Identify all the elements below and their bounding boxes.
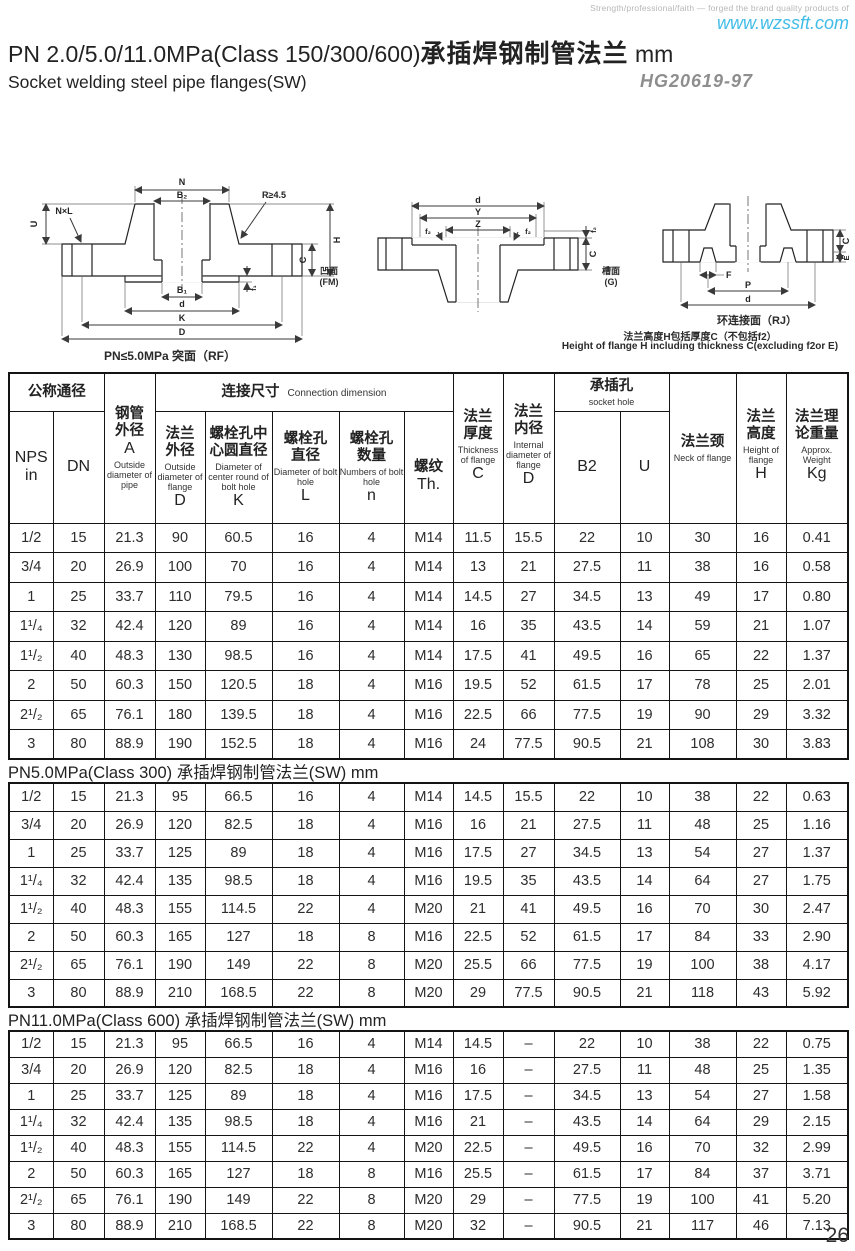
- dim-label-d: d: [745, 294, 751, 304]
- table-cell: 4: [339, 783, 404, 811]
- table-cell: 16: [453, 1057, 503, 1083]
- table-cell: 43.5: [554, 612, 620, 642]
- table-cell: 27: [736, 1083, 786, 1109]
- table-cell: 18: [272, 1057, 339, 1083]
- dim-label-U: U: [29, 221, 39, 228]
- id-en: Internal diameter of flange: [504, 440, 554, 470]
- website-url: www.wzssft.com: [717, 13, 849, 34]
- w-cn: 法兰理 论重量: [795, 409, 839, 443]
- table-cell: 4: [339, 867, 404, 895]
- fm-face-label: 凹面 (FM): [312, 266, 346, 288]
- table-cell: 22.5: [453, 700, 503, 730]
- table-cell: 120.5: [205, 671, 272, 701]
- header-thread: 螺纹 Th.: [404, 411, 453, 523]
- table-row: 2¹/₂6576.1190149228M2029–77.519100415.20: [9, 1187, 848, 1213]
- table-cell: 190: [155, 730, 205, 760]
- table-cell: 30: [669, 523, 736, 553]
- table-cell: M16: [404, 867, 453, 895]
- table-cell: 110: [155, 582, 205, 612]
- table-cell: 33.7: [104, 582, 155, 612]
- table-cell: 135: [155, 867, 205, 895]
- dim-label-C: C: [841, 237, 851, 244]
- table-row: 2¹/₂6576.1180139.5184M1622.56677.5199029…: [9, 700, 848, 730]
- flange-spec-table-pn110: 1/21521.39566.5164M1414.5–221038220.753/…: [8, 1030, 849, 1240]
- header-b2: B2: [554, 411, 620, 523]
- table-cell: 88.9: [104, 979, 155, 1007]
- table-cell: 4: [339, 523, 404, 553]
- table-cell: 20: [53, 1057, 104, 1083]
- rj-diagram-caption: 环连接面（RJ）: [672, 312, 842, 328]
- header-u: U: [620, 411, 669, 523]
- dim-label-Z: Z: [475, 219, 481, 229]
- flange-rf-diagram: N B₂ N×L R≥4.5 U H C f₁ B₁ d: [14, 152, 346, 344]
- table-cell: 22.5: [453, 1135, 503, 1161]
- table-cell: 1¹/₄: [9, 867, 53, 895]
- table-cell: 21.3: [104, 523, 155, 553]
- dim-label-H: H: [332, 237, 342, 244]
- table-cell: 76.1: [104, 951, 155, 979]
- table-cell: 21: [453, 895, 503, 923]
- table-cell: 95: [155, 783, 205, 811]
- table-cell: 38: [669, 553, 736, 583]
- table-cell: 0.63: [786, 783, 848, 811]
- table-cell: 95: [155, 1031, 205, 1057]
- table-cell: 4: [339, 1109, 404, 1135]
- table-cell: 27: [503, 582, 554, 612]
- table-cell: 15: [53, 783, 104, 811]
- table-cell: 22: [736, 783, 786, 811]
- table-cell: 48: [669, 1057, 736, 1083]
- header-socket-hole: 承插孔 socket hole: [554, 373, 669, 411]
- table-cell: 18: [272, 923, 339, 951]
- dim-label-N: N: [179, 177, 186, 187]
- table-cell: 80: [53, 1213, 104, 1239]
- table-row: 38088.9210168.5228M2032–90.521117467.13: [9, 1213, 848, 1239]
- table-cell: M16: [404, 923, 453, 951]
- table-cell: 2.01: [786, 671, 848, 701]
- n-letter: n: [367, 487, 376, 505]
- socket-en: socket hole: [555, 397, 669, 407]
- table-cell: 8: [339, 951, 404, 979]
- table-cell: 61.5: [554, 923, 620, 951]
- header-nominal-diameter: 公称通径: [9, 373, 104, 411]
- dim-label-D: D: [179, 327, 186, 337]
- h-letter: H: [755, 465, 767, 483]
- table-cell: M16: [404, 1109, 453, 1135]
- table-cell: 22: [272, 1187, 339, 1213]
- dim-label-f1: f₁: [249, 285, 258, 291]
- header-nominal-cn: 公称通径: [28, 384, 86, 400]
- table-cell: 60.3: [104, 1161, 155, 1187]
- table-cell: 1¹/₄: [9, 1109, 53, 1135]
- table-cell: 4: [339, 730, 404, 760]
- table-cell: 1: [9, 1083, 53, 1109]
- table-cell: 41: [736, 1187, 786, 1213]
- flange-cross-section: [663, 196, 833, 272]
- table-cell: 70: [669, 1135, 736, 1161]
- table-cell: 17: [736, 582, 786, 612]
- table-cell: 155: [155, 1135, 205, 1161]
- dim-label-C: C: [298, 256, 308, 263]
- w-letter: Kg: [807, 465, 827, 483]
- flange-cross-section: [62, 194, 302, 290]
- table-cell: 4: [339, 582, 404, 612]
- table-cell: 19.5: [453, 867, 503, 895]
- table-cell: 48.3: [104, 641, 155, 671]
- conn-cn: 连接尺寸: [222, 384, 280, 400]
- dim-label-R: R≥4.5: [262, 190, 286, 200]
- table-cell: 70: [205, 553, 272, 583]
- table-cell: 18: [272, 1083, 339, 1109]
- table-cell: 130: [155, 641, 205, 671]
- table-cell: 190: [155, 1187, 205, 1213]
- table-cell: 37: [736, 1161, 786, 1187]
- k-en: Diameter of center round of bolt hole: [206, 462, 272, 492]
- table-cell: 120: [155, 1057, 205, 1083]
- table-cell: 100: [669, 1187, 736, 1213]
- table-row: 3/42026.910070164M14132127.51138160.58: [9, 553, 848, 583]
- page-title-en: PN 2.0/5.0/11.0MPa(Class 150/300/600): [8, 41, 421, 67]
- page-title: PN 2.0/5.0/11.0MPa(Class 150/300/600)承插焊…: [8, 34, 673, 70]
- dim-label-E: E: [842, 255, 851, 260]
- table-cell: 4: [339, 811, 404, 839]
- table-cell: 11.5: [453, 523, 503, 553]
- dim-label-P: P: [745, 280, 751, 290]
- table-cell: 210: [155, 1213, 205, 1239]
- table-cell: 25.5: [453, 951, 503, 979]
- table-row: 1¹/₂4048.313098.5164M1417.54149.51665221…: [9, 641, 848, 671]
- table-body-pn110: 1/21521.39566.5164M1414.5–221038220.753/…: [9, 1031, 848, 1239]
- table-cell: M20: [404, 1213, 453, 1239]
- table-cell: 16: [272, 1031, 339, 1057]
- table-cell: 52: [503, 923, 554, 951]
- table-cell: 42.4: [104, 1109, 155, 1135]
- table-cell: 41: [503, 641, 554, 671]
- table-cell: 16: [453, 612, 503, 642]
- th-cn: 螺纹: [414, 459, 443, 476]
- table-cell: 2¹/₂: [9, 700, 53, 730]
- table-cell: 4: [339, 1083, 404, 1109]
- table-cell: M20: [404, 1135, 453, 1161]
- table-cell: 84: [669, 923, 736, 951]
- table-cell: 16: [620, 895, 669, 923]
- table-cell: 35: [503, 612, 554, 642]
- table-cell: 22: [736, 1031, 786, 1057]
- table-cell: 2.15: [786, 1109, 848, 1135]
- header-dn: DN: [53, 411, 104, 523]
- table-cell: M14: [404, 582, 453, 612]
- table-cell: 22: [554, 1031, 620, 1057]
- table-cell: 1.58: [786, 1083, 848, 1109]
- table-cell: 1.37: [786, 839, 848, 867]
- table-row: 3/42026.912082.5184M16162127.51148251.16: [9, 811, 848, 839]
- table-cell: 26.9: [104, 553, 155, 583]
- nps-line2: in: [25, 467, 37, 485]
- dim-label-C: C: [588, 250, 598, 257]
- table-cell: 38: [736, 951, 786, 979]
- table-cell: 34.5: [554, 582, 620, 612]
- table-cell: 80: [53, 730, 104, 760]
- table-cell: 14: [620, 1109, 669, 1135]
- table-cell: 1: [9, 582, 53, 612]
- table-cell: 16: [620, 1135, 669, 1161]
- table-cell: M14: [404, 783, 453, 811]
- table-cell: 14.5: [453, 1031, 503, 1057]
- table-row: 1¹/₄3242.412089164M14163543.51459211.07: [9, 612, 848, 642]
- header-flange-thickness: 法兰 厚度 Thickness of flange C: [453, 373, 503, 523]
- table-cell: 98.5: [205, 867, 272, 895]
- header-approx-weight: 法兰理 论重量 Approx. Weight Kg: [786, 373, 848, 523]
- table-cell: 27.5: [554, 1057, 620, 1083]
- table-cell: 90.5: [554, 979, 620, 1007]
- table-row: 25060.3165127188M1622.55261.51784332.90: [9, 923, 848, 951]
- table-cell: M16: [404, 811, 453, 839]
- dim-label-f2-mid: f₂: [525, 227, 531, 236]
- table-cell: 21: [503, 811, 554, 839]
- table-cell: 22: [272, 951, 339, 979]
- table-cell: 139.5: [205, 700, 272, 730]
- table-cell: 49: [669, 582, 736, 612]
- table-cell: 8: [339, 923, 404, 951]
- table-cell: 149: [205, 1187, 272, 1213]
- table-cell: 26.9: [104, 811, 155, 839]
- table-cell: 150: [155, 671, 205, 701]
- table-cell: 29: [453, 979, 503, 1007]
- table-cell: 2.47: [786, 895, 848, 923]
- page-subtitle: Socket welding steel pipe flanges(SW): [8, 72, 307, 93]
- table-cell: 27: [736, 839, 786, 867]
- table-cell: 3: [9, 730, 53, 760]
- table-cell: 29: [736, 1109, 786, 1135]
- table-cell: 22: [272, 1135, 339, 1161]
- table-cell: 65: [53, 1187, 104, 1213]
- page-title-unit: mm: [629, 41, 674, 67]
- table-cell: 1/2: [9, 1031, 53, 1057]
- table-cell: M14: [404, 641, 453, 671]
- l-letter: L: [301, 487, 310, 505]
- table-cell: 4: [339, 895, 404, 923]
- table-cell: 17: [620, 671, 669, 701]
- table-cell: 38: [669, 1031, 736, 1057]
- table-cell: 88.9: [104, 1213, 155, 1239]
- table-cell: 1¹/₂: [9, 895, 53, 923]
- rf-diagram-caption: PN≤5.0MPa 突面（RF）: [60, 347, 280, 364]
- table-row: 12533.711079.5164M1414.52734.51349170.80: [9, 582, 848, 612]
- table-cell: 40: [53, 895, 104, 923]
- table-cell: 82.5: [205, 811, 272, 839]
- dim-label-d: d: [179, 299, 185, 309]
- table-cell: M16: [404, 839, 453, 867]
- table-cell: 3.32: [786, 700, 848, 730]
- table-cell: –: [503, 1031, 554, 1057]
- table-cell: 66: [503, 951, 554, 979]
- table-cell: 14.5: [453, 582, 503, 612]
- table-cell: 33.7: [104, 1083, 155, 1109]
- table-cell: 16: [453, 811, 503, 839]
- table-cell: 3.71: [786, 1161, 848, 1187]
- table-cell: M16: [404, 1083, 453, 1109]
- table-cell: M16: [404, 671, 453, 701]
- table-cell: 18: [272, 839, 339, 867]
- table-row: 12533.712589184M1617.5–34.51354271.58: [9, 1083, 848, 1109]
- table-cell: 1.07: [786, 612, 848, 642]
- table-cell: 165: [155, 1161, 205, 1187]
- table-cell: 54: [669, 839, 736, 867]
- l-cn: 螺栓孔 直径: [284, 431, 328, 465]
- table-cell: 65: [669, 641, 736, 671]
- table-cell: 24: [453, 730, 503, 760]
- b2-label: B2: [577, 458, 597, 475]
- g-face-label-code: (G): [605, 277, 618, 287]
- pipe-letter: A: [124, 440, 135, 458]
- table-cell: 15.5: [503, 783, 554, 811]
- table-cell: M14: [404, 553, 453, 583]
- l-en: Diameter of bolt hole: [273, 467, 339, 487]
- h-en: Height of flange: [737, 445, 786, 465]
- table-cell: 40: [53, 1135, 104, 1161]
- nps-line1: NPS: [15, 449, 48, 467]
- table-cell: 8: [339, 1187, 404, 1213]
- table-cell: 10: [620, 783, 669, 811]
- table-cell: 42.4: [104, 867, 155, 895]
- table-cell: 80: [53, 979, 104, 1007]
- table-cell: 3: [9, 1213, 53, 1239]
- table-cell: 18: [272, 1161, 339, 1187]
- table-row: 38088.9190152.5184M162477.590.521108303.…: [9, 730, 848, 760]
- table-cell: 1¹/₂: [9, 641, 53, 671]
- table-cell: 77.5: [554, 700, 620, 730]
- table-row: 25060.3165127188M1625.5–61.51784373.71: [9, 1161, 848, 1187]
- table-cell: 52: [503, 671, 554, 701]
- table-cell: 17.5: [453, 839, 503, 867]
- table-cell: 15: [53, 523, 104, 553]
- n-en: Numbers of bolt hole: [340, 467, 404, 487]
- rj-note-en: Height of flange H including thickness C…: [548, 341, 852, 352]
- table-cell: 8: [339, 979, 404, 1007]
- header-flange-height: 法兰 高度 Height of flange H: [736, 373, 786, 523]
- table-cell: 48: [669, 811, 736, 839]
- dn-label: DN: [67, 458, 90, 475]
- table-cell: 21: [620, 1213, 669, 1239]
- table-cell: 135: [155, 1109, 205, 1135]
- table-cell: 168.5: [205, 1213, 272, 1239]
- table-body-pn20: 1/21521.39060.5164M1411.515.5221030160.4…: [9, 523, 848, 759]
- table-row: 3/42026.912082.5184M1616–27.51148251.35: [9, 1057, 848, 1083]
- table-cell: 20: [53, 553, 104, 583]
- table-cell: –: [503, 1109, 554, 1135]
- table-cell: M14: [404, 523, 453, 553]
- table-cell: 4: [339, 553, 404, 583]
- table-cell: 4: [339, 612, 404, 642]
- header-flange-od: 法兰 外径 Outside diameter of flange D: [155, 411, 205, 523]
- table-cell: 27.5: [554, 553, 620, 583]
- dim-label-f2-right: f₂: [589, 227, 598, 233]
- table-cell: 76.1: [104, 700, 155, 730]
- table-cell: 98.5: [205, 641, 272, 671]
- flange-spec-table-pn20: 公称通径 钢管 外径 A Outside diameter of pipe 连接…: [8, 372, 849, 760]
- flange-rj-diagram: C E F P d: [648, 192, 854, 314]
- table-cell: 21: [736, 612, 786, 642]
- fm-face-label-code: (FM): [320, 277, 339, 287]
- id-cn: 法兰 内径: [514, 404, 543, 438]
- table-cell: 17: [620, 923, 669, 951]
- table-cell: 16: [272, 641, 339, 671]
- table-row: 1/21521.39060.5164M1411.515.5221030160.4…: [9, 523, 848, 553]
- table-cell: 21.3: [104, 1031, 155, 1057]
- table-cell: 90.5: [554, 730, 620, 760]
- table-cell: 66.5: [205, 1031, 272, 1057]
- table-cell: 35: [503, 867, 554, 895]
- table-cell: 89: [205, 839, 272, 867]
- table-cell: –: [503, 1083, 554, 1109]
- table-cell: 2.99: [786, 1135, 848, 1161]
- conn-en: Connection dimension: [288, 388, 387, 399]
- flange-cross-section: [378, 226, 578, 312]
- table-cell: 25: [736, 811, 786, 839]
- table-cell: 78: [669, 671, 736, 701]
- table-cell: M20: [404, 979, 453, 1007]
- table-row: 25060.3150120.5184M1619.55261.51778252.0…: [9, 671, 848, 701]
- table-cell: 13: [453, 553, 503, 583]
- table-cell: 2¹/₂: [9, 1187, 53, 1213]
- table-cell: 4: [339, 1031, 404, 1057]
- table-cell: 76.1: [104, 1187, 155, 1213]
- table-cell: 34.5: [554, 839, 620, 867]
- table-cell: 21: [503, 553, 554, 583]
- th-letter: Th.: [417, 476, 440, 494]
- table-cell: 21: [620, 979, 669, 1007]
- table-cell: 18: [272, 867, 339, 895]
- h-cn: 法兰 高度: [747, 409, 776, 443]
- section-title-pn110: PN11.0MPa(Class 600) 承插焊钢制管法兰(SW) mm: [8, 1007, 386, 1031]
- table-cell: –: [503, 1161, 554, 1187]
- table-cell: 32: [53, 867, 104, 895]
- table-cell: 4: [339, 1057, 404, 1083]
- table-cell: 43.5: [554, 867, 620, 895]
- table-cell: M16: [404, 1057, 453, 1083]
- pipe-cn: 钢管 外径: [115, 406, 144, 440]
- table-cell: 43: [736, 979, 786, 1007]
- table-cell: 180: [155, 700, 205, 730]
- table-cell: M14: [404, 612, 453, 642]
- table-cell: 22: [736, 641, 786, 671]
- dim-label-d: d: [475, 196, 481, 205]
- table-cell: 33.7: [104, 839, 155, 867]
- d-cn: 法兰 外径: [166, 426, 195, 460]
- table-row: 1¹/₄3242.413598.5184M1619.53543.51464271…: [9, 867, 848, 895]
- table-cell: 4: [339, 700, 404, 730]
- table-cell: 20: [53, 811, 104, 839]
- table-cell: 65: [53, 951, 104, 979]
- table-cell: 60.5: [205, 523, 272, 553]
- k-letter: K: [233, 492, 244, 510]
- table-cell: 61.5: [554, 1161, 620, 1187]
- table-cell: 48.3: [104, 1135, 155, 1161]
- table-cell: 17.5: [453, 1083, 503, 1109]
- table-cell: 210: [155, 979, 205, 1007]
- table-cell: 14: [620, 867, 669, 895]
- table-cell: 82.5: [205, 1057, 272, 1083]
- flange-spec-table-pn50: 1/21521.39566.5164M1414.515.5221038220.6…: [8, 782, 849, 1008]
- socket-cn: 承插孔: [555, 378, 669, 395]
- table-cell: 84: [669, 1161, 736, 1187]
- d-letter: D: [174, 492, 186, 510]
- table-cell: 19: [620, 700, 669, 730]
- neck-en: Neck of flange: [674, 453, 732, 463]
- u-label: U: [639, 458, 651, 475]
- table-cell: 2.90: [786, 923, 848, 951]
- table-cell: 10: [620, 1031, 669, 1057]
